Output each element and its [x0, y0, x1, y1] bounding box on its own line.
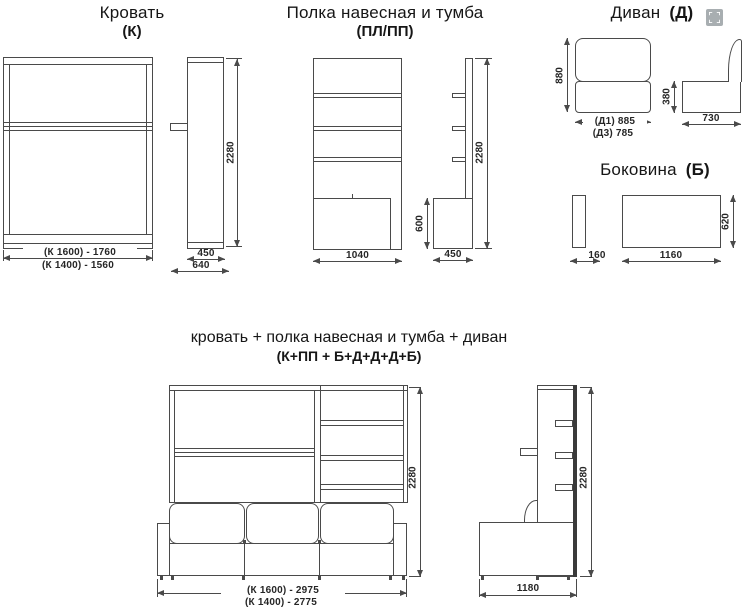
dim-bed-width-k1400: (К 1400) - 1560 [23, 260, 133, 271]
drawing-line [244, 543, 245, 576]
dim-sofa-width-d3: (Д3) 785 [583, 128, 643, 139]
dim-shelf-height: 2280 [475, 133, 486, 173]
drawing-line [390, 198, 391, 249]
combined-sofa-backrest [169, 503, 245, 544]
drawing-line [321, 484, 403, 485]
sofa-front-seat [575, 81, 651, 113]
foot [318, 576, 321, 580]
combined-side-handle [520, 448, 538, 456]
drawing-line [188, 242, 223, 243]
foot [242, 576, 245, 580]
combined-side-shelf [555, 484, 573, 491]
drawing-line [188, 62, 223, 63]
drawing-line [9, 64, 10, 235]
dim-bed-depth-640: 640 [181, 260, 221, 271]
combined-side-shelf-panel [573, 385, 577, 577]
foot [160, 576, 163, 580]
bed-front-view [3, 57, 153, 249]
foot [402, 576, 405, 580]
drawing-line [175, 456, 314, 457]
sofa-title-code: (Д) [669, 3, 693, 22]
sofa-front-backrest [575, 38, 651, 82]
seam-mark [243, 540, 246, 543]
dim-cabinet-depth: 450 [433, 249, 473, 260]
drawing-line [170, 390, 407, 391]
dimension-line [567, 38, 568, 112]
foot [171, 576, 174, 580]
drawing-line [538, 389, 576, 390]
dim-side-panel-length: 1160 [650, 250, 692, 261]
dim-sofa-seat-height: 380 [662, 77, 673, 117]
drawing-line [319, 543, 320, 576]
dimension-line [591, 387, 592, 577]
sofa-title: Диван(Д) [552, 3, 748, 23]
drawing-line [314, 157, 401, 158]
side-panel-title-code: (Б) [686, 160, 710, 179]
drawing-line [321, 460, 403, 461]
drawing-line [4, 64, 152, 65]
side-panel-face-view [622, 195, 721, 248]
drawing-line [4, 126, 152, 127]
dim-combined-height: 2280 [408, 458, 419, 498]
side-panel-edge-view [572, 195, 586, 248]
drawing-line [314, 93, 401, 94]
combined-side-shelf [555, 420, 573, 427]
shelf-side-shelf [452, 126, 466, 131]
drawing-line [314, 97, 401, 98]
dimension-line [171, 271, 229, 272]
side-panel-title-word: Боковина [600, 160, 677, 179]
drawing-line [321, 455, 403, 456]
drawing-line [403, 385, 404, 503]
furniture-blueprint: Кровать (К) (К 1600) - 1760 (К 1400) - 1… [0, 0, 748, 613]
dim-combined-width-k1400: (К 1400) - 2775 [221, 597, 341, 608]
drawing-line [321, 489, 403, 490]
drawing-line [4, 234, 152, 235]
drawing-line [314, 130, 401, 131]
combined-sofa-seat [169, 543, 394, 576]
drawing-line [314, 161, 401, 162]
dimension-line [479, 595, 577, 596]
shelf-side-shelf [452, 157, 466, 162]
foot [481, 576, 484, 580]
dim-sofa-depth: 730 [690, 113, 732, 124]
drawing-line [321, 425, 403, 426]
foot [536, 576, 539, 580]
combined-side-panel-left [157, 523, 170, 576]
drawing-line [175, 448, 314, 449]
sofa-title-word: Диван [611, 3, 661, 22]
drawing-line [174, 390, 175, 502]
dimension-line [570, 261, 600, 262]
drawing-line [314, 390, 315, 502]
cabinet-side-view [433, 198, 473, 249]
dim-shelf-width: 1040 [321, 250, 394, 261]
sofa-side-backrest [728, 39, 742, 82]
drawing-line [314, 198, 390, 199]
shelf-title: Полка навесная и тумба [260, 3, 510, 23]
bed-handle [170, 123, 188, 131]
bed-code: (К) [32, 23, 232, 40]
drawing-line [321, 420, 403, 421]
combined-front-view [169, 385, 408, 503]
combined-side-panel-right [393, 523, 407, 576]
dim-side-panel-thickness: 160 [580, 250, 614, 261]
dimension-line [682, 124, 741, 125]
seam-mark [318, 540, 321, 543]
foot [567, 576, 570, 580]
dim-bed-width-k1600: (К 1600) - 1760 [23, 247, 137, 258]
drawing-line [146, 64, 147, 235]
dimension-line [674, 81, 675, 113]
dim-cabinet-height: 600 [415, 204, 426, 244]
dim-side-panel-height: 620 [721, 202, 732, 242]
dim-combined-depth: 1180 [500, 583, 556, 594]
dimension-line [3, 258, 153, 259]
combined-side-shelf [555, 452, 573, 459]
dimension-line [433, 260, 473, 261]
combined-side-sofa-seat [479, 522, 577, 576]
bed-title: Кровать [32, 3, 232, 23]
side-panel-title: Боковина(Б) [555, 160, 748, 180]
dim-bed-depth-450: 450 [186, 248, 226, 259]
dim-sofa-height: 880 [555, 56, 566, 96]
bed-side-view [187, 57, 224, 249]
dim-combined-side-height: 2280 [579, 458, 590, 498]
dimension-line [237, 59, 238, 247]
drawing-line [175, 452, 314, 453]
dimension-line [487, 58, 488, 249]
foot [389, 576, 392, 580]
drawing-line [4, 243, 152, 244]
dimension-line [420, 387, 421, 577]
dim-sofa-width-d1: (Д1) 885 [583, 116, 647, 127]
drawing-line [4, 130, 152, 131]
dimension-line [733, 195, 734, 248]
drawing-line [320, 385, 321, 503]
combined-title: кровать + полка навесная и тумба + диван [99, 329, 599, 347]
dim-bed-height: 2280 [226, 133, 237, 173]
drawing-line [4, 122, 152, 123]
combined-code: (К+ПП + Б+Д+Д+Д+Б) [99, 348, 599, 364]
dimension-line [622, 261, 721, 262]
drawing-line [314, 126, 401, 127]
dim-combined-width-k1600: (К 1600) - 2975 [221, 585, 345, 596]
shelf-front-view [313, 58, 402, 250]
combined-sofa-backrest [320, 503, 394, 544]
dimension-line [427, 198, 428, 249]
dimension-line [313, 261, 402, 262]
shelf-code: (ПЛ/ПП) [260, 23, 510, 40]
sofa-side-seat [682, 81, 741, 113]
shelf-side-shelf [452, 93, 466, 98]
combined-side-sofa-backrest [524, 500, 537, 523]
combined-sofa-backrest [246, 503, 319, 544]
